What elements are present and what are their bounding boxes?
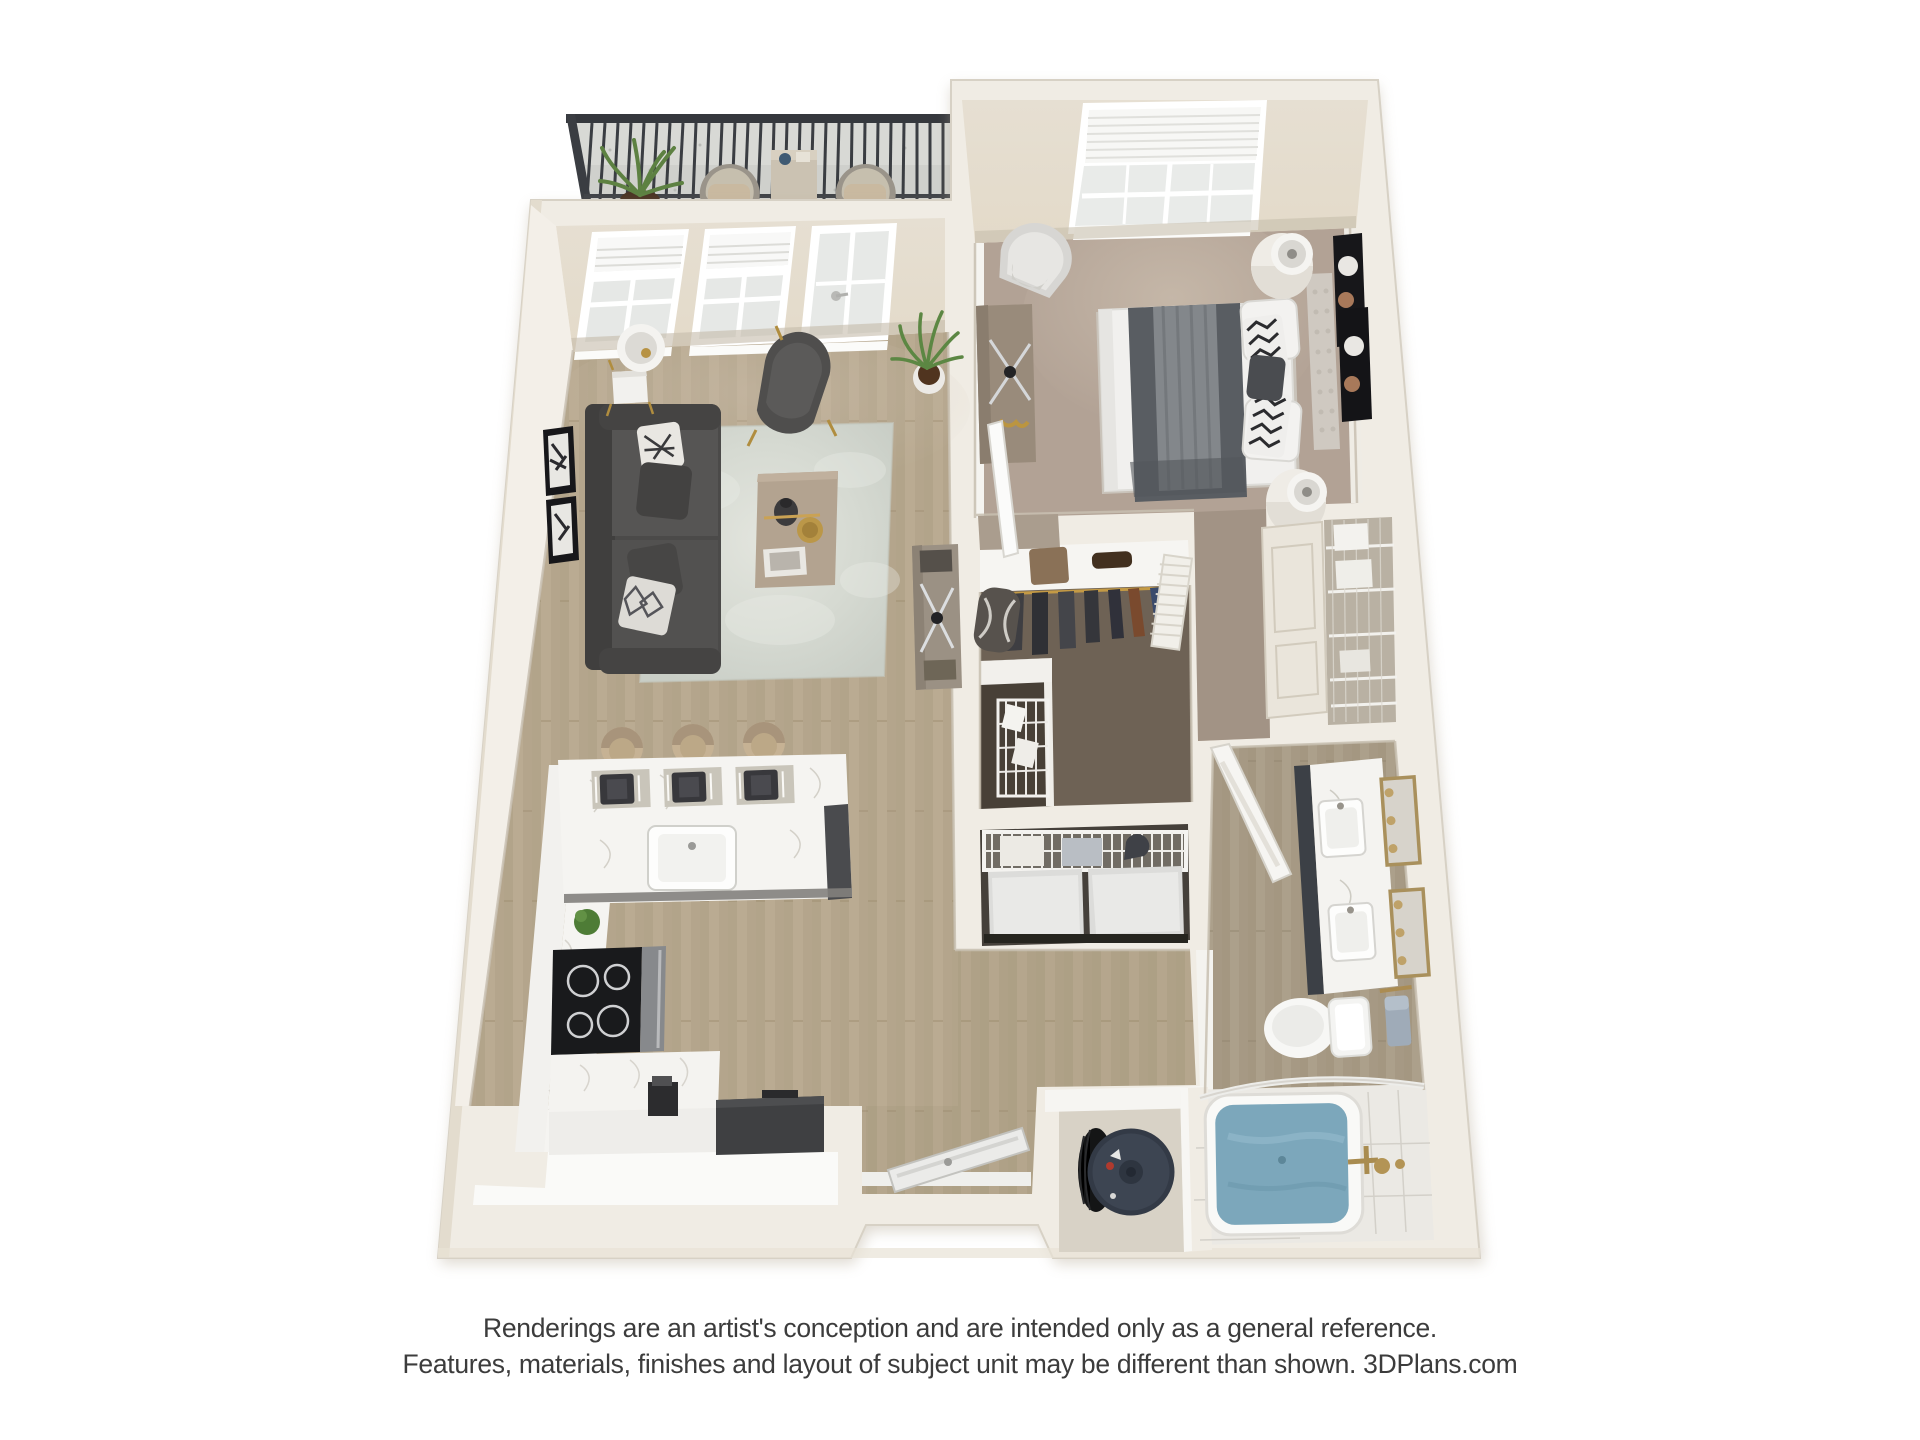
- svg-text:Renderings are an artist's con: Renderings are an artist's conception an…: [483, 1313, 1437, 1343]
- svg-text:Features, materials, finishes: Features, materials, finishes and layout…: [403, 1349, 1518, 1379]
